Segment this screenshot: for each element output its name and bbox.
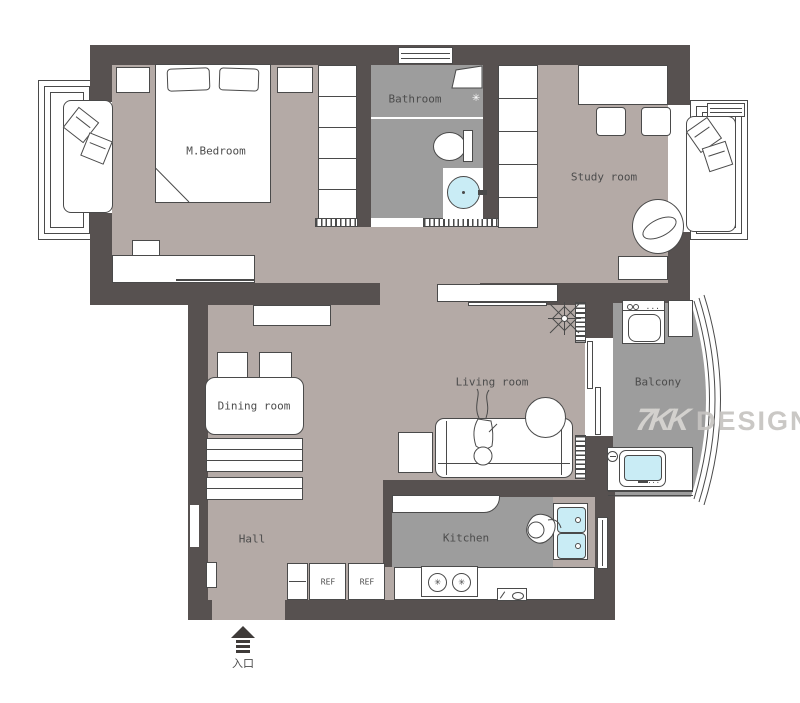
wall-hall-west xyxy=(188,300,208,620)
plant-icon xyxy=(548,302,581,335)
cutting-board xyxy=(497,588,527,601)
balcony-door-leaf xyxy=(587,341,593,389)
wash-basin xyxy=(447,176,480,209)
study-cabinet xyxy=(618,256,668,280)
living-label: Living room xyxy=(456,376,529,389)
study-chair xyxy=(641,107,671,136)
wall-top xyxy=(90,45,690,65)
kitchen-label: Kitchen xyxy=(443,532,489,545)
wall-bathroom-east xyxy=(483,65,498,227)
wall-left-upper xyxy=(90,45,112,102)
wall-bathroom-west xyxy=(357,65,371,227)
watermark-text: DESIGN xyxy=(696,406,800,437)
bedroom-tv-cabinet xyxy=(112,255,255,283)
hall-label: Hall xyxy=(239,533,266,546)
balcony-top-window xyxy=(707,103,745,117)
bathroom-label: Bathroom xyxy=(389,93,442,106)
pillow xyxy=(219,67,260,91)
watermark: 7KK DESIGN xyxy=(636,402,800,438)
toilet-tank xyxy=(463,130,473,162)
tv xyxy=(468,302,547,306)
bedroom-wardrobe xyxy=(318,65,357,219)
living-tv-cabinet xyxy=(437,284,558,302)
egg-chair xyxy=(632,199,684,254)
burner-icon: ✳ xyxy=(452,573,471,592)
drain-icon xyxy=(607,451,618,462)
nightstand-right xyxy=(277,67,313,93)
light-icon: ✳ xyxy=(468,90,484,106)
balcony-sill-line xyxy=(608,495,693,496)
kitchen-counter-top xyxy=(392,495,500,513)
balcony-sill-line xyxy=(608,491,693,492)
nightstand-left xyxy=(116,67,150,93)
bedroom-label: M.Bedroom xyxy=(186,145,246,158)
kitchen-side-window xyxy=(597,517,608,569)
toilet xyxy=(433,132,466,161)
dining-label: Dining room xyxy=(218,400,291,413)
hall-wall-niche xyxy=(190,505,199,547)
knife-icon xyxy=(500,591,505,598)
hall-small-cabinet xyxy=(287,563,308,600)
study-chair xyxy=(596,107,626,136)
corridor-floor xyxy=(357,227,498,283)
bathroom-partition-line xyxy=(371,117,483,119)
study-wardrobe xyxy=(498,65,538,228)
person-lying xyxy=(465,386,501,472)
coffee-table xyxy=(525,397,566,438)
dining-chair xyxy=(259,352,292,380)
fish-icon xyxy=(512,592,524,600)
entrance-label: 入口 xyxy=(232,655,254,671)
wardrobe-sliding-door xyxy=(315,218,358,227)
bathroom-window xyxy=(398,47,453,64)
burner-icon: ✳ xyxy=(428,573,447,592)
bathroom-door-opening xyxy=(371,218,423,227)
washer-drum xyxy=(628,314,661,342)
study-desk xyxy=(578,65,668,105)
dining-north-cabinet xyxy=(253,305,331,326)
sofa-side-table xyxy=(398,432,433,473)
fridge-label: REF xyxy=(321,578,335,587)
wall-bedroom-south xyxy=(90,283,380,305)
pillow xyxy=(167,67,211,91)
laundry-sink: ... xyxy=(619,450,666,487)
floor-plan: ✳ xyxy=(0,0,800,703)
person-standing xyxy=(520,508,562,552)
entrance-arrow-icon xyxy=(230,626,256,654)
washing-machine: ... xyxy=(622,300,665,344)
study-label: Study room xyxy=(571,171,637,184)
basin-faucet xyxy=(478,190,487,195)
wall-balcony-upper xyxy=(585,283,613,338)
balcony-label: Balcony xyxy=(635,376,681,389)
hall-shoe-cabinet xyxy=(206,477,303,500)
balcony-door-leaf xyxy=(595,387,601,435)
dining-sideboard xyxy=(206,438,303,472)
hall-side-cabinet xyxy=(206,562,217,588)
shower-head xyxy=(450,64,484,90)
balcony-cabinet xyxy=(668,300,693,337)
curtain-coil-lower xyxy=(575,435,586,479)
stove: ✳ ✳ xyxy=(421,566,478,597)
entrance-opening xyxy=(212,600,285,620)
fridge-label: REF xyxy=(360,578,374,587)
wall-study-east-upper xyxy=(668,45,690,105)
dining-chair xyxy=(217,352,248,380)
watermark-logo: 7KK xyxy=(633,402,688,438)
